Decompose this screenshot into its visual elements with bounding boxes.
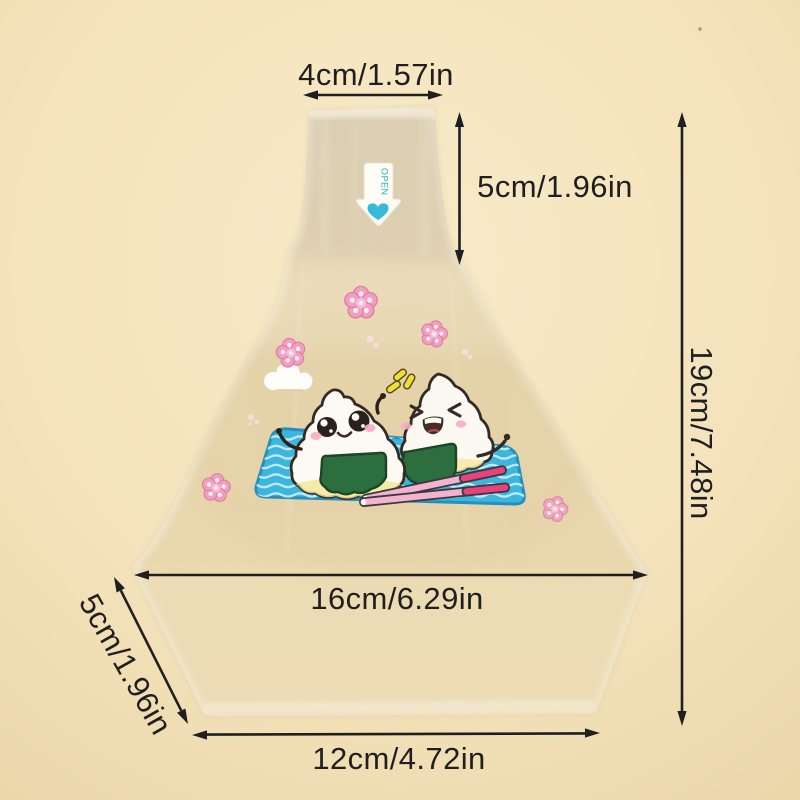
- svg-text:16cm/6.29in: 16cm/6.29in: [310, 581, 483, 616]
- svg-text:OPEN: OPEN: [380, 168, 390, 196]
- svg-text:12cm/4.72in: 12cm/4.72in: [312, 741, 485, 776]
- svg-text:4cm/1.57in: 4cm/1.57in: [298, 57, 454, 92]
- svg-text:19cm/7.48in: 19cm/7.48in: [684, 346, 719, 519]
- svg-text:5cm/1.96in: 5cm/1.96in: [477, 169, 633, 204]
